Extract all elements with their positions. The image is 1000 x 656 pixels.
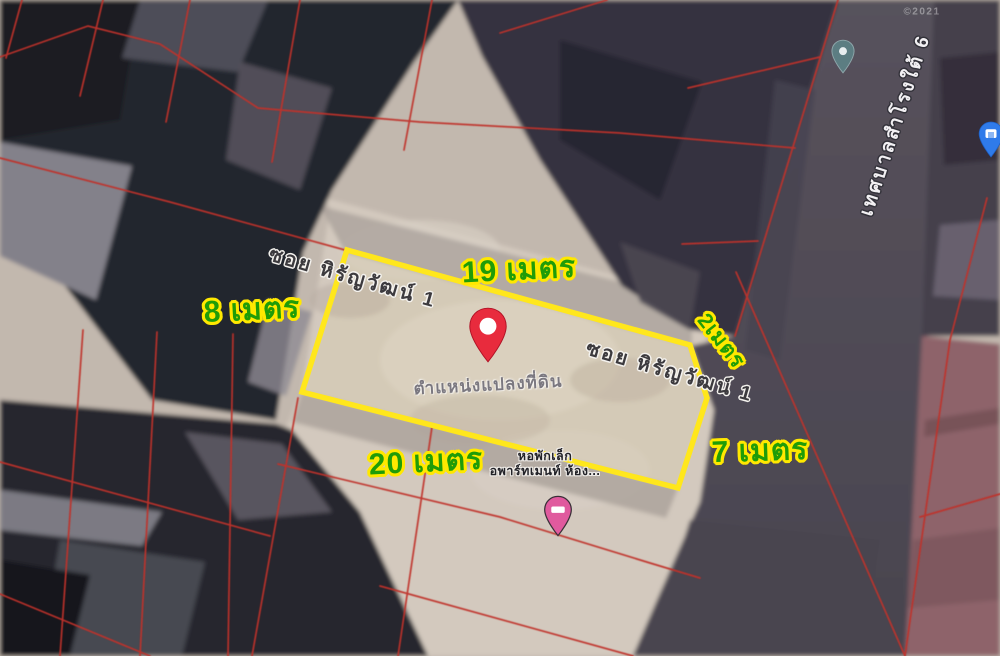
poi-lodging-detail: อพาร์ทเมนท์ ห้อง... xyxy=(490,464,601,478)
measure-right-label: 7 เมตร xyxy=(711,426,809,476)
imagery-watermark: ©2021 xyxy=(903,7,940,18)
plot-location-pin-icon[interactable] xyxy=(465,305,511,370)
poi-lodging-name: หอพักเล็ก xyxy=(518,449,573,463)
shop-pin-icon[interactable] xyxy=(976,120,1000,164)
measure-top-label: 19 เมตร xyxy=(461,244,578,297)
map-canvas[interactable]: 19 เมตร 8 เมตร 20 เมตร 7 เมตร 2เมตร ซอย … xyxy=(0,0,1000,656)
lodging-pin-icon[interactable] xyxy=(541,495,575,542)
place-pin-icon[interactable] xyxy=(829,38,857,80)
measure-bottom-label: 20 เมตร xyxy=(368,436,485,489)
poi-lodging-label: หอพักเล็ก อพาร์ทเมนท์ ห้อง... xyxy=(490,449,601,479)
measure-left-label: 8 เมตร xyxy=(203,284,302,336)
